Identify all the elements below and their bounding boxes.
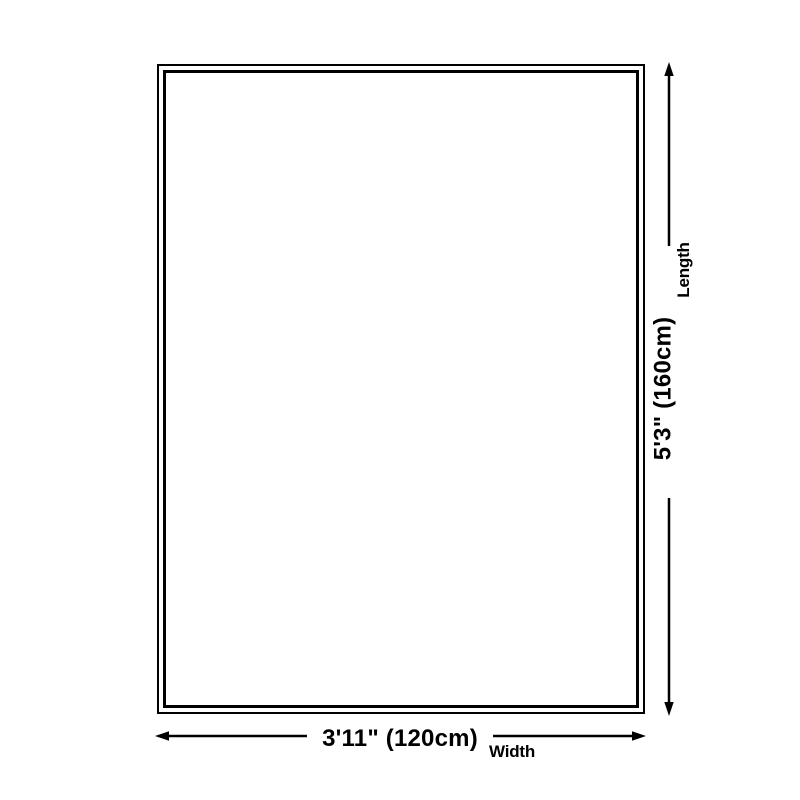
length-text-label: Length <box>675 230 693 310</box>
dimension-arrows <box>0 0 800 800</box>
length-value-label: 5'3" (160cm) <box>650 239 677 539</box>
width-text-label: Width <box>489 743 535 760</box>
rug-dimension-diagram: 5'3" (160cm) Length 3'11" (120cm) Width <box>0 0 800 800</box>
